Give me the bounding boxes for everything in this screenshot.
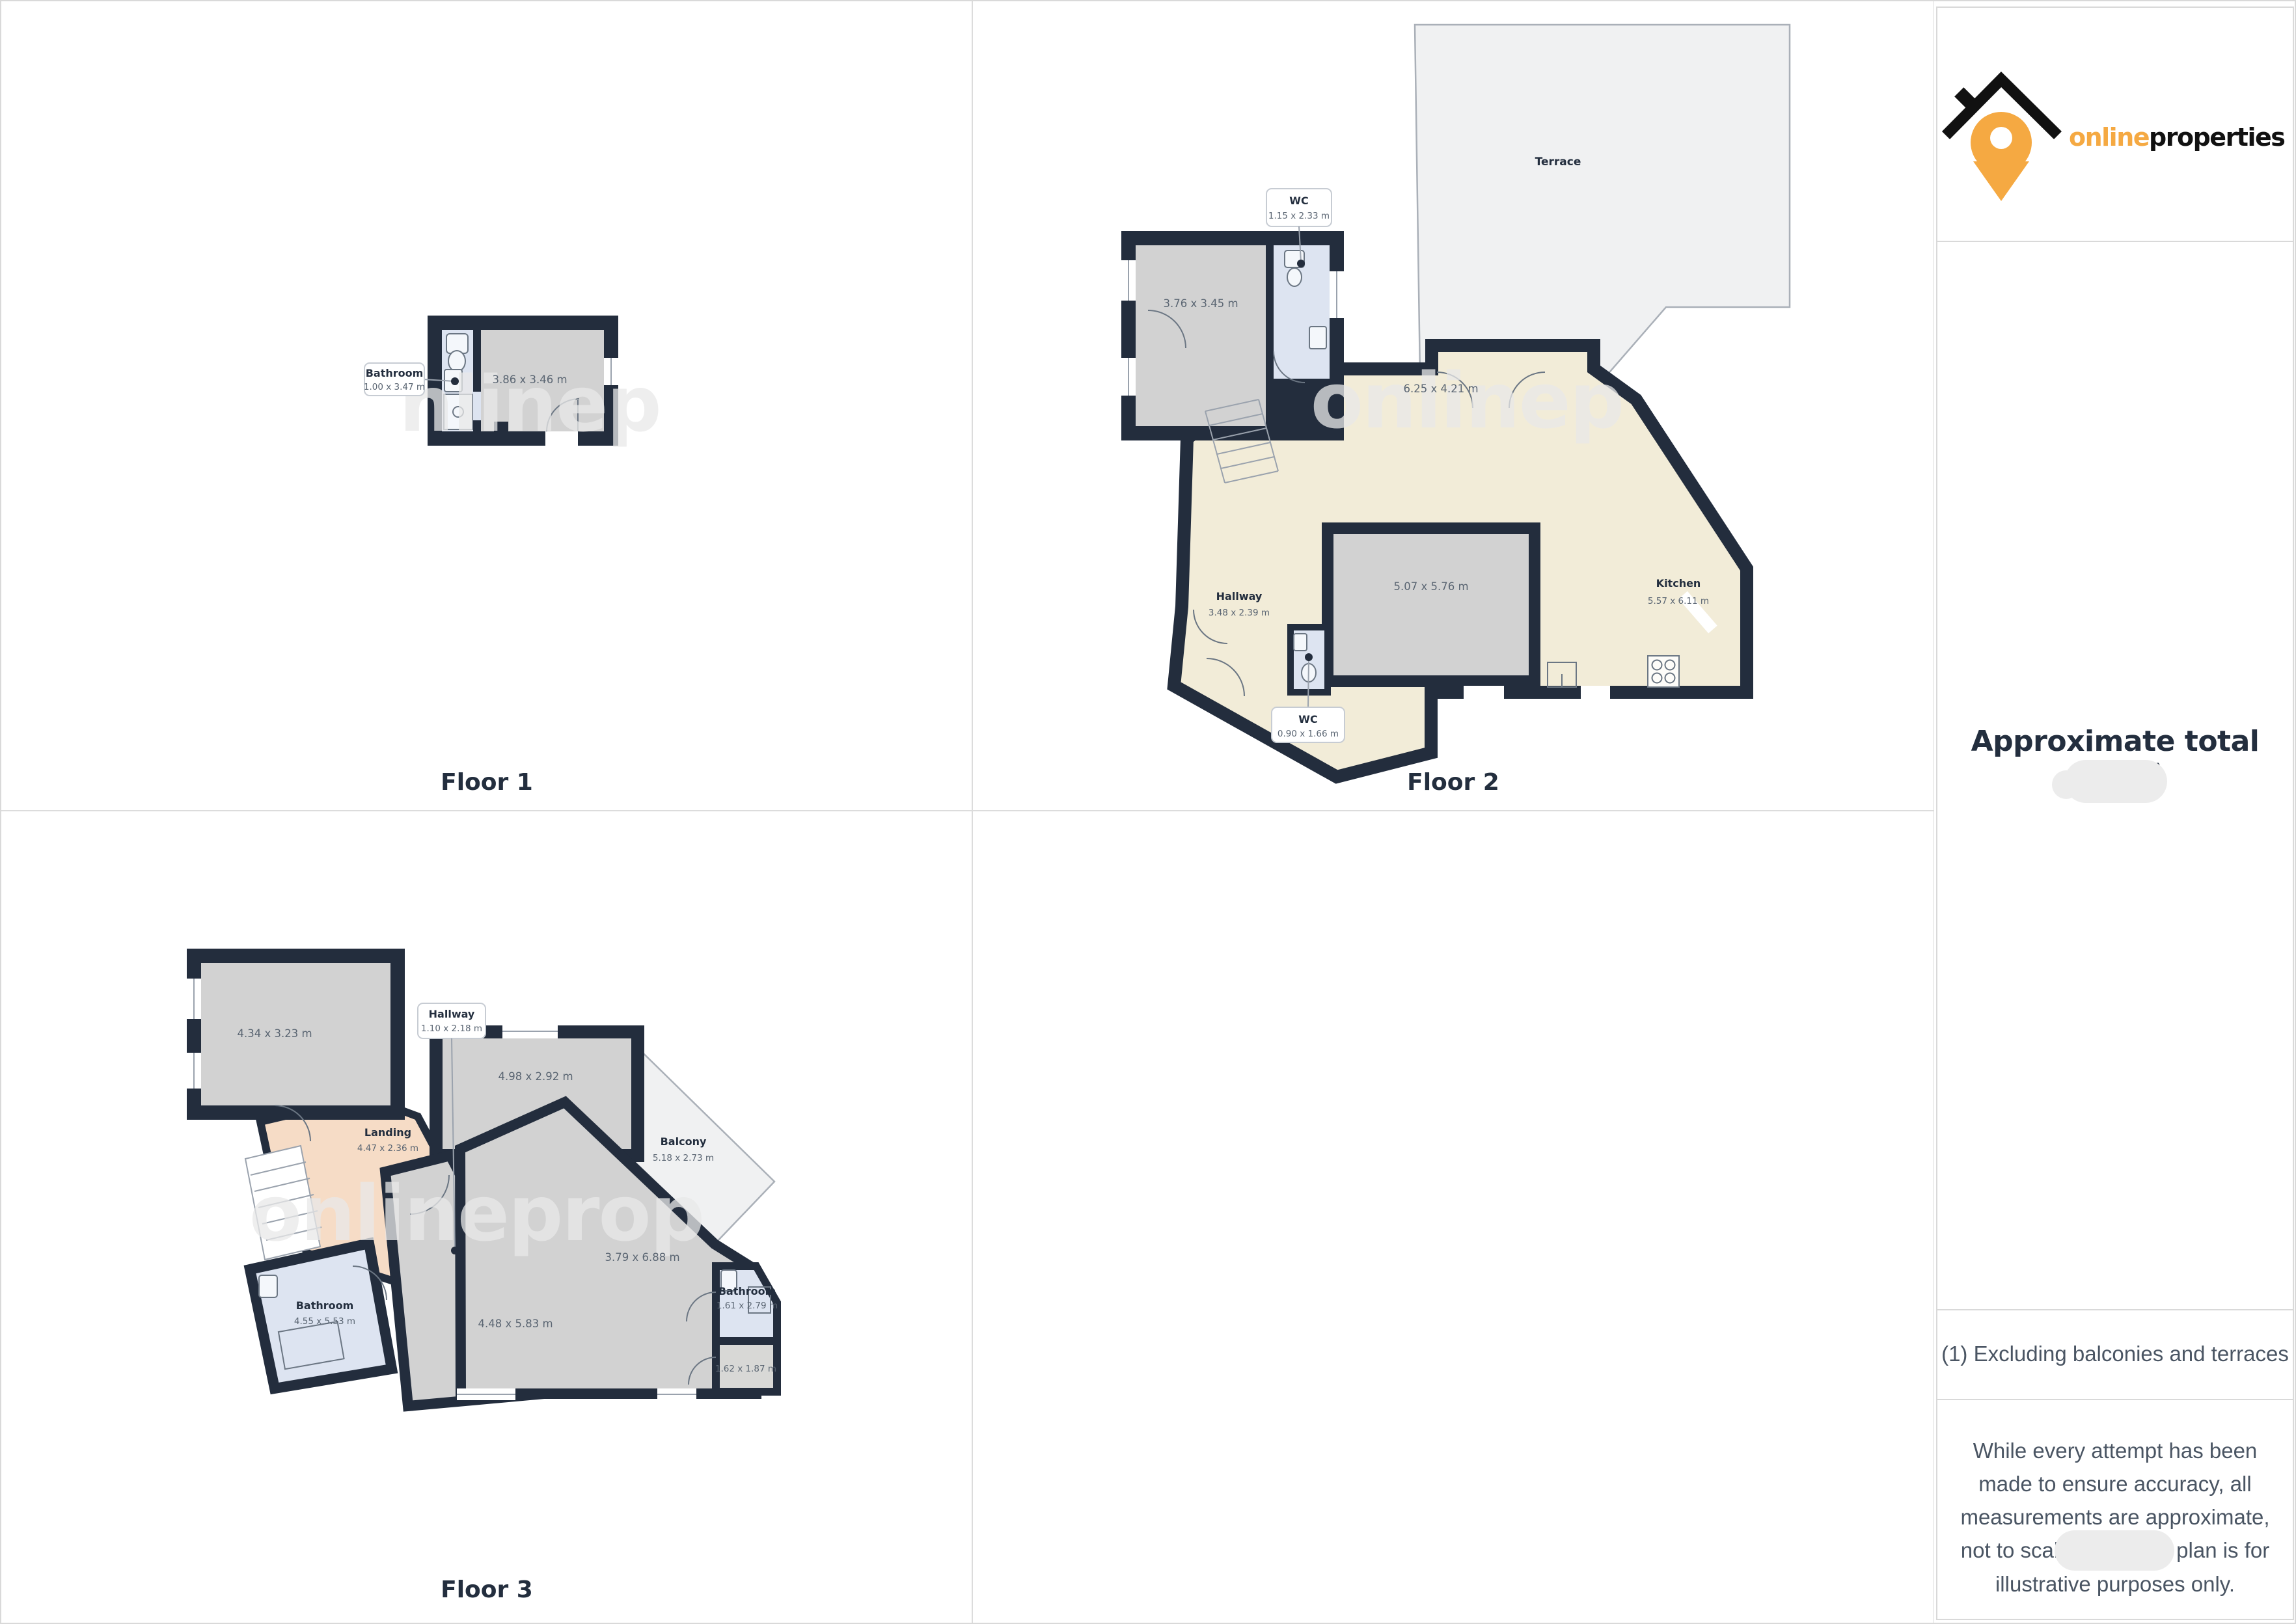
sink-icon (1309, 327, 1326, 349)
divider-vertical-1 (972, 1, 973, 1624)
room-dims: 3.48 x 2.39 m (1209, 608, 1270, 618)
room-dims: 1.00 x 3.47 m (364, 382, 425, 392)
floor-2-title: Floor 2 (972, 769, 1934, 796)
room-name: Balcony (661, 1135, 707, 1148)
room-dims: 1.15 x 2.33 m (1268, 211, 1330, 221)
room-5-07 (1328, 528, 1535, 681)
room-dims: 3.86 x 3.46 m (492, 373, 567, 386)
room-3-76 (1136, 245, 1266, 426)
room-dims: 1.62 x 1.87 m (715, 1364, 776, 1374)
label-anchor-dot (451, 1247, 459, 1254)
room-dims: 6.25 x 4.21 m (1403, 383, 1478, 395)
brand-word-online: online (2069, 123, 2149, 152)
brand-logo: onlineproperties (1937, 8, 2295, 241)
room-dims: 4.47 x 2.36 m (357, 1143, 418, 1154)
brand-word-properties: properties (2149, 123, 2284, 152)
room-dims: 5.57 x 6.11 m (1648, 596, 1709, 606)
panel-floor-1: nlinep Bathroom 1.00 x 3.47 m 3.86 x 3.4… (1, 1, 972, 811)
toilet-bowl-icon (1287, 268, 1302, 286)
floor-3-title: Floor 3 (1, 1577, 972, 1603)
panel-floor-2: Terrace (972, 1, 1934, 811)
room-dims: 3.76 x 3.45 m (1163, 297, 1238, 310)
stove-icon (1648, 656, 1679, 687)
panel-floor-3: onlineprop 4.34 x 3.23 m Hallway 1.10 x … (1, 811, 972, 1624)
window (1581, 686, 1610, 699)
window (1464, 686, 1504, 699)
room-dims: 5.18 x 2.73 m (653, 1153, 714, 1163)
footnote-card: (1) Excluding balconies and terraces (1936, 1309, 2294, 1400)
room-name: Bathroom (296, 1299, 354, 1312)
watermark: onlinep (1311, 356, 1623, 446)
room-dims: 4.98 x 2.92 m (498, 1070, 573, 1083)
watermark: onlineprop (249, 1169, 704, 1258)
label-anchor-dot (1305, 653, 1313, 661)
logo-card: onlineproperties (1936, 7, 2294, 242)
footnote-text: (1) Excluding balconies and terraces (1937, 1342, 2293, 1366)
room-name: Hallway (429, 1008, 475, 1020)
divider-horizontal (1, 810, 1934, 811)
sink-icon (1294, 634, 1307, 651)
room-terrace (1415, 25, 1790, 376)
room-name: Kitchen (1656, 577, 1701, 589)
room-name: Bathroom (718, 1285, 776, 1297)
floorplan-floor-3: onlineprop 4.34 x 3.23 m Hallway 1.10 x … (1, 811, 972, 1624)
redacted-total-area-value-tail (2052, 770, 2081, 799)
room-dims: 1.10 x 2.18 m (421, 1023, 482, 1034)
room-name: WC (1298, 713, 1317, 725)
room-dims: 1.61 x 2.79 m (717, 1301, 778, 1311)
brand-wordmark: onlineproperties (2069, 123, 2284, 152)
redacted-bottom-logo (2055, 1530, 2174, 1571)
room-name: Bathroom (366, 367, 424, 379)
room-dims: 4.34 x 3.23 m (237, 1027, 312, 1040)
sidebar: onlineproperties Approximate total area(… (1934, 1, 2296, 1624)
room-dims: 5.07 x 5.76 m (1393, 580, 1468, 593)
label-anchor-dot (1297, 260, 1305, 267)
room-dims: 4.48 x 5.83 m (478, 1318, 553, 1330)
room-dims: 0.90 x 1.66 m (1278, 729, 1339, 739)
label-anchor-dot (451, 377, 459, 385)
disclaimer-text: While every attempt has been made to ens… (1956, 1434, 2275, 1601)
room-dims: 3.79 x 6.88 m (605, 1251, 679, 1264)
room-name: Hallway (1216, 590, 1263, 602)
room-name: WC (1289, 195, 1308, 207)
toilet-icon (259, 1275, 277, 1297)
disclaimer-card: While every attempt has been made to ens… (1936, 1399, 2294, 1620)
floor-1-title: Floor 1 (1, 769, 972, 796)
floorplan-floor-2: Terrace (972, 1, 1934, 811)
panel-empty (972, 811, 1934, 1624)
total-area-card: Approximate total area(1) (1936, 241, 2294, 1310)
watermark: nlinep (399, 359, 660, 449)
location-pin-icon (1971, 112, 2032, 201)
room-name: Terrace (1535, 156, 1581, 169)
room-name: Landing (364, 1126, 411, 1139)
label-leader (1308, 660, 1309, 707)
floorplan-floor-1: nlinep Bathroom 1.00 x 3.47 m 3.86 x 3.4… (1, 1, 972, 811)
room-dims: 4.55 x 5.53 m (294, 1316, 355, 1327)
floorplan-page: nlinep Bathroom 1.00 x 3.47 m 3.86 x 3.4… (0, 0, 2296, 1624)
